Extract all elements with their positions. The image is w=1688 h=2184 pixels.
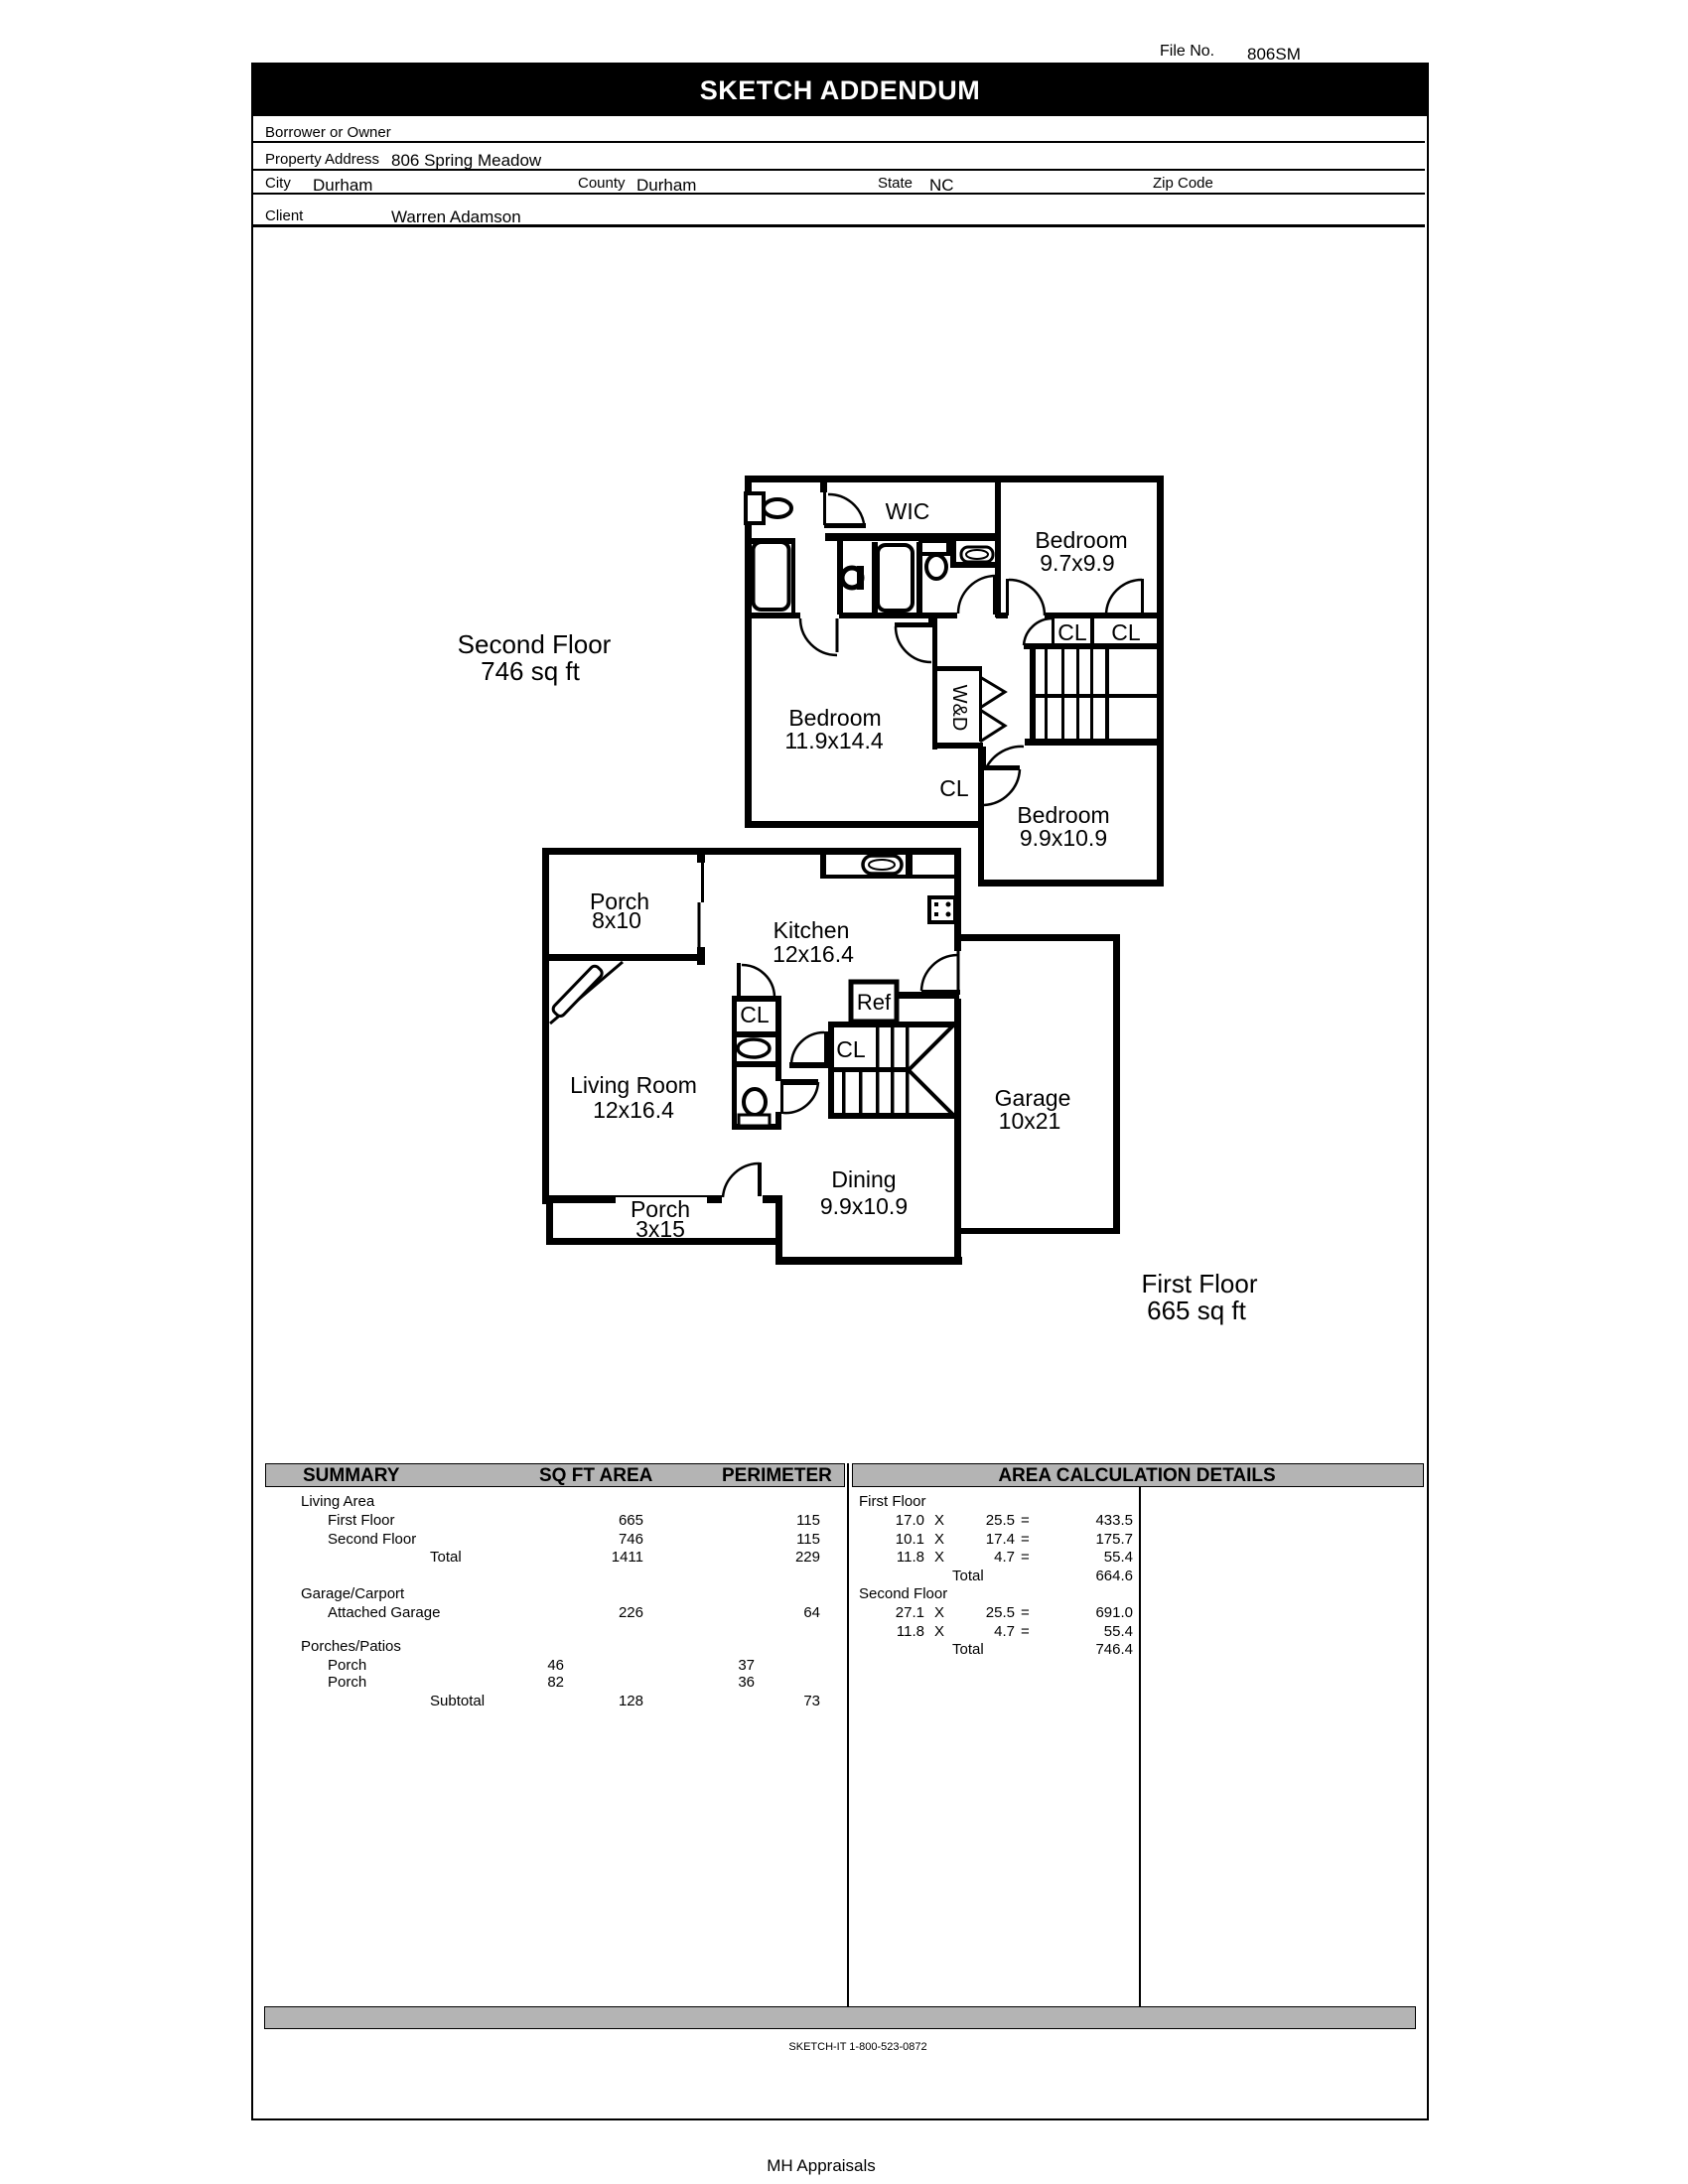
svg-text:Ref: Ref [857,990,892,1015]
svg-text:First Floor: First Floor [1142,1269,1258,1298]
svg-text:CL: CL [836,1036,866,1062]
svg-text:10x21: 10x21 [999,1108,1061,1134]
svg-text:WIC: WIC [886,498,930,524]
svg-text:12x16.4: 12x16.4 [773,941,854,967]
svg-text:3x15: 3x15 [635,1216,685,1242]
svg-text:9.9x10.9: 9.9x10.9 [820,1193,908,1219]
svg-text:11.9x14.4: 11.9x14.4 [784,728,884,753]
svg-text:CL: CL [740,1002,770,1027]
svg-text:746 sq ft: 746 sq ft [481,656,581,686]
svg-text:665 sq ft: 665 sq ft [1147,1296,1247,1325]
svg-text:Dining: Dining [831,1166,896,1192]
svg-text:12x16.4: 12x16.4 [593,1097,674,1123]
svg-text:9.7x9.9: 9.7x9.9 [1040,550,1114,576]
svg-text:Second Floor: Second Floor [458,629,612,659]
svg-text:W&D: W&D [948,685,970,732]
svg-text:CL: CL [939,775,969,801]
svg-text:8x10: 8x10 [592,907,641,933]
svg-text:CL: CL [1111,619,1141,645]
svg-text:Living Room: Living Room [570,1072,697,1098]
svg-text:9.9x10.9: 9.9x10.9 [1020,825,1107,851]
svg-text:Kitchen: Kitchen [774,917,850,943]
svg-text:CL: CL [1057,619,1087,645]
